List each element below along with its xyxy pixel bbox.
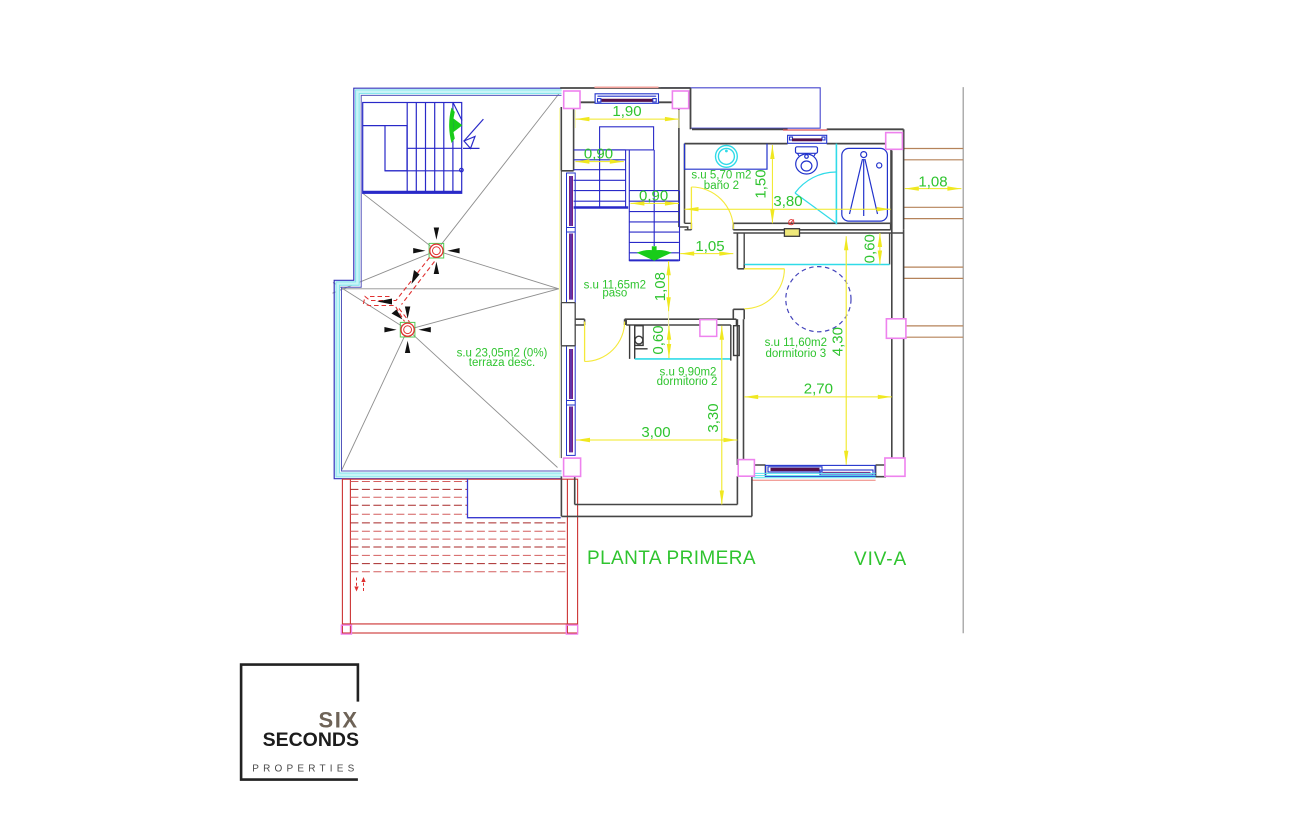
svg-text:1,08: 1,08 — [918, 174, 947, 191]
svg-text:1,90: 1,90 — [612, 103, 641, 120]
svg-text:1,50: 1,50 — [753, 169, 770, 198]
svg-text:SECONDS: SECONDS — [263, 729, 359, 751]
svg-text:VIV-A: VIV-A — [854, 549, 907, 570]
svg-text:4,30: 4,30 — [830, 327, 847, 356]
svg-text:0,60: 0,60 — [650, 325, 667, 354]
svg-text:0,90: 0,90 — [639, 187, 668, 204]
svg-text:3,00: 3,00 — [641, 424, 670, 441]
svg-text:3,30: 3,30 — [705, 403, 722, 432]
svg-text:0,90: 0,90 — [584, 146, 613, 163]
svg-text:dormitorio 2: dormitorio 2 — [657, 376, 718, 388]
svg-text:2,70: 2,70 — [804, 381, 833, 398]
svg-text:dormitorio 3: dormitorio 3 — [765, 348, 826, 360]
svg-text:3,80: 3,80 — [773, 193, 802, 210]
svg-text:baño 2: baño 2 — [704, 180, 739, 192]
svg-text:1,08: 1,08 — [652, 272, 669, 301]
svg-text:paso: paso — [602, 288, 627, 300]
svg-text:PROPERTIES: PROPERTIES — [252, 764, 358, 775]
svg-text:terraza desc.: terraza desc. — [469, 357, 535, 369]
svg-text:0,60: 0,60 — [861, 234, 878, 263]
svg-text:1,05: 1,05 — [695, 238, 724, 255]
svg-text:PLANTA PRIMERA: PLANTA PRIMERA — [587, 548, 756, 569]
